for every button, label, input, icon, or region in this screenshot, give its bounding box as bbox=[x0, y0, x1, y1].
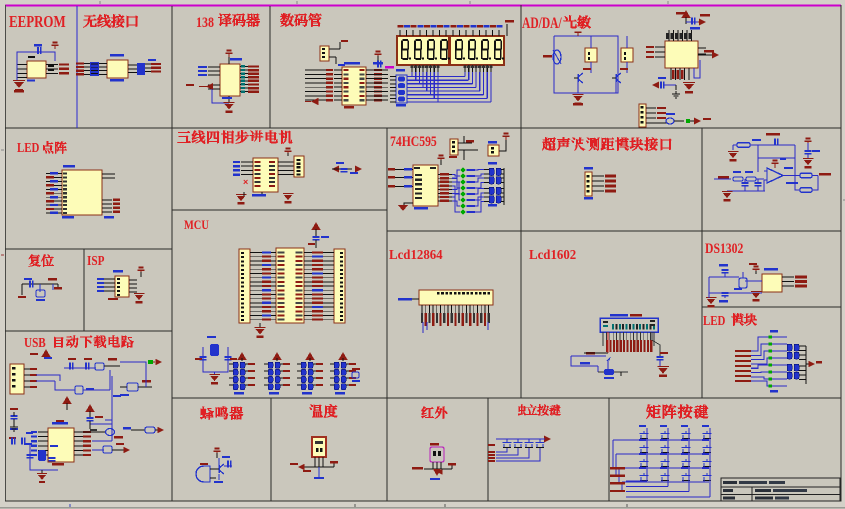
svg-text:EEPROM: EEPROM bbox=[9, 13, 66, 31]
svg-text:AD/DA/: AD/DA/ bbox=[522, 15, 563, 32]
svg-text:74HC595: 74HC595 bbox=[390, 133, 437, 150]
svg-text:138: 138 bbox=[196, 14, 214, 31]
svg-text:Lcd1602: Lcd1602 bbox=[529, 247, 576, 263]
svg-text:ISP: ISP bbox=[87, 253, 105, 268]
svg-text:MCU: MCU bbox=[184, 218, 209, 232]
svg-text:LED: LED bbox=[703, 313, 725, 329]
svg-text:Lcd12864: Lcd12864 bbox=[389, 247, 443, 263]
svg-text:×: × bbox=[243, 177, 248, 187]
svg-text:USB: USB bbox=[24, 335, 46, 350]
svg-text:DS1302: DS1302 bbox=[705, 240, 744, 257]
svg-text:LED: LED bbox=[17, 140, 39, 156]
